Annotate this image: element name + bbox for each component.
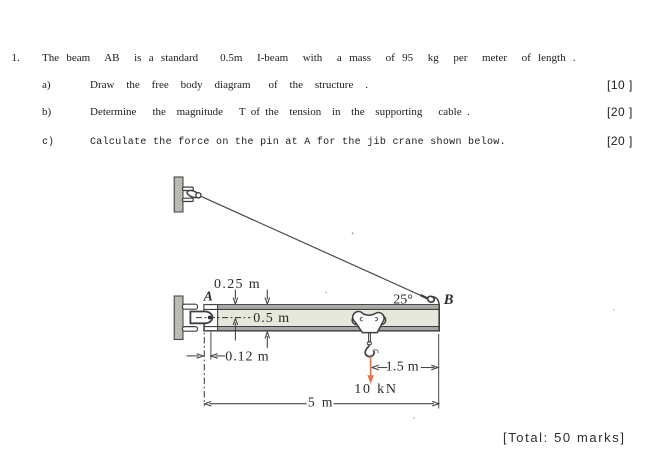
svg-text:B: B [443, 292, 454, 308]
svg-text:1.5 m: 1.5 m [386, 360, 419, 375]
svg-text:25°: 25° [393, 292, 413, 307]
svg-text:0.25 m: 0.25 m [214, 277, 261, 292]
svg-text:A: A [203, 289, 213, 304]
svg-text:10 kN: 10 kN [354, 382, 398, 397]
svg-text:5 m: 5 m [308, 394, 334, 409]
svg-text:0.5 m: 0.5 m [253, 311, 290, 326]
svg-text:0.12 m: 0.12 m [225, 349, 269, 364]
